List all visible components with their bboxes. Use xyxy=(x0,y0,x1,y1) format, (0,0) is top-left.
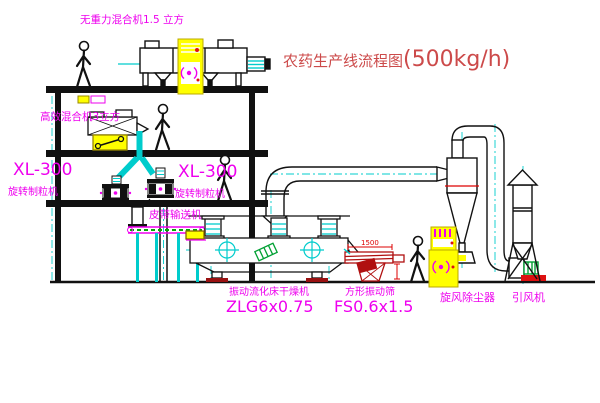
square-vibrating-screen xyxy=(344,244,404,281)
indicator-light xyxy=(195,48,199,52)
gravity-free-mixer xyxy=(140,40,270,86)
label-cyclone-name: 旋风除尘器 xyxy=(440,290,495,304)
cad-flow-diagram: 农药生产线流程图(500kg/h) 无重力混合机1.5 立方 高效混合机3立方 … xyxy=(0,0,600,403)
worker-figure-ground xyxy=(411,237,424,283)
label-fan-name: 引风机 xyxy=(512,290,545,304)
exhaust-stack xyxy=(513,185,532,243)
dryer-exhaust-stubs xyxy=(202,216,340,239)
dryer-inlet xyxy=(186,231,204,239)
label-dryer-model: ZLG6x0.75 xyxy=(226,297,314,316)
label-granulator-left-model: XL-300 xyxy=(13,160,72,180)
fan-base xyxy=(521,275,546,281)
indicator-light xyxy=(451,242,454,245)
control-cabinet-top xyxy=(178,39,203,94)
worker-figure-floor2 xyxy=(156,105,169,151)
alarm-icon xyxy=(439,265,443,269)
worker-figure-roof xyxy=(77,42,90,88)
label-granulator-right-model: XL-300 xyxy=(178,162,237,182)
dimension-screen-width: 1500 xyxy=(361,239,379,247)
label-granulator-right-name: 旋转制粒机 xyxy=(175,187,225,200)
label-high-efficiency-mixer: 高效混合机3立方 xyxy=(40,110,120,123)
label-belt-conveyor: 皮带输送机 xyxy=(149,208,202,221)
diagram-canvas: 农药生产线流程图(500kg/h) 无重力混合机1.5 立方 高效混合机3立方 … xyxy=(0,0,600,403)
label-granulator-left-name: 旋转制粒机 xyxy=(8,185,58,198)
label-screen-model: FS0.6x1.5 xyxy=(334,297,413,316)
stack-cap xyxy=(508,170,537,185)
diagram-title: 农药生产线流程图(500kg/h) xyxy=(283,47,510,72)
fluid-bed-dryer xyxy=(186,216,358,282)
alarm-icon xyxy=(187,71,191,75)
control-cabinet-right xyxy=(429,227,458,287)
wall-fittings xyxy=(78,96,105,103)
label-gravity-free-mixer: 无重力混合机1.5 立方 xyxy=(80,13,184,26)
granulator-left xyxy=(100,176,131,201)
